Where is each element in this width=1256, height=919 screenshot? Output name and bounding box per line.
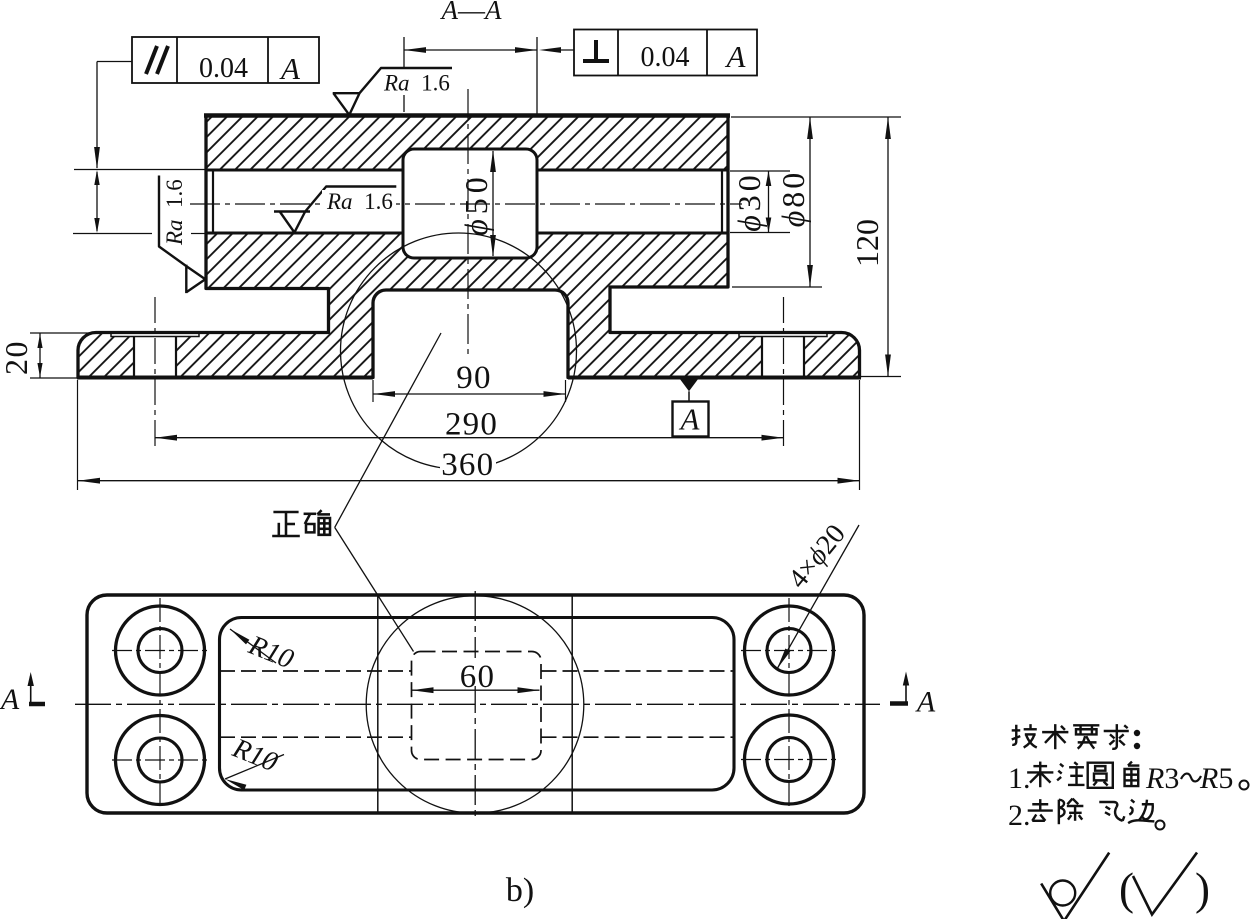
svg-text:Ra 1.6: Ra 1.6 (162, 179, 187, 246)
svg-text:2.: 2. (1008, 799, 1031, 832)
svg-text:R5: R5 (1199, 762, 1233, 795)
svg-text:ϕ30: ϕ30 (731, 171, 767, 232)
svg-text:290: 290 (445, 407, 498, 443)
svg-text:Ra 1.6: Ra 1.6 (383, 71, 450, 96)
svg-text:20: 20 (0, 340, 34, 375)
svg-text:A: A (0, 683, 20, 716)
svg-text:b): b) (506, 872, 534, 909)
svg-text:0.04: 0.04 (199, 53, 248, 84)
svg-text:A: A (679, 402, 701, 437)
svg-text:A—A: A—A (440, 0, 503, 25)
svg-text:A: A (725, 39, 747, 74)
svg-text:ϕ50: ϕ50 (458, 172, 494, 236)
svg-text:60: 60 (460, 659, 495, 695)
svg-text:0.04: 0.04 (641, 42, 690, 73)
svg-text:90: 90 (456, 360, 491, 396)
svg-text:Ra 1.6: Ra 1.6 (326, 189, 393, 214)
svg-text:ϕ80: ϕ80 (775, 170, 811, 228)
svg-text:1.: 1. (1008, 762, 1031, 795)
svg-text:(: ( (1119, 864, 1134, 914)
svg-text:): ) (1195, 864, 1210, 914)
svg-text:A: A (915, 686, 936, 719)
svg-text:R3: R3 (1145, 762, 1179, 795)
svg-text:360: 360 (441, 447, 494, 483)
svg-text:120: 120 (849, 219, 885, 267)
svg-text:A: A (279, 51, 301, 86)
